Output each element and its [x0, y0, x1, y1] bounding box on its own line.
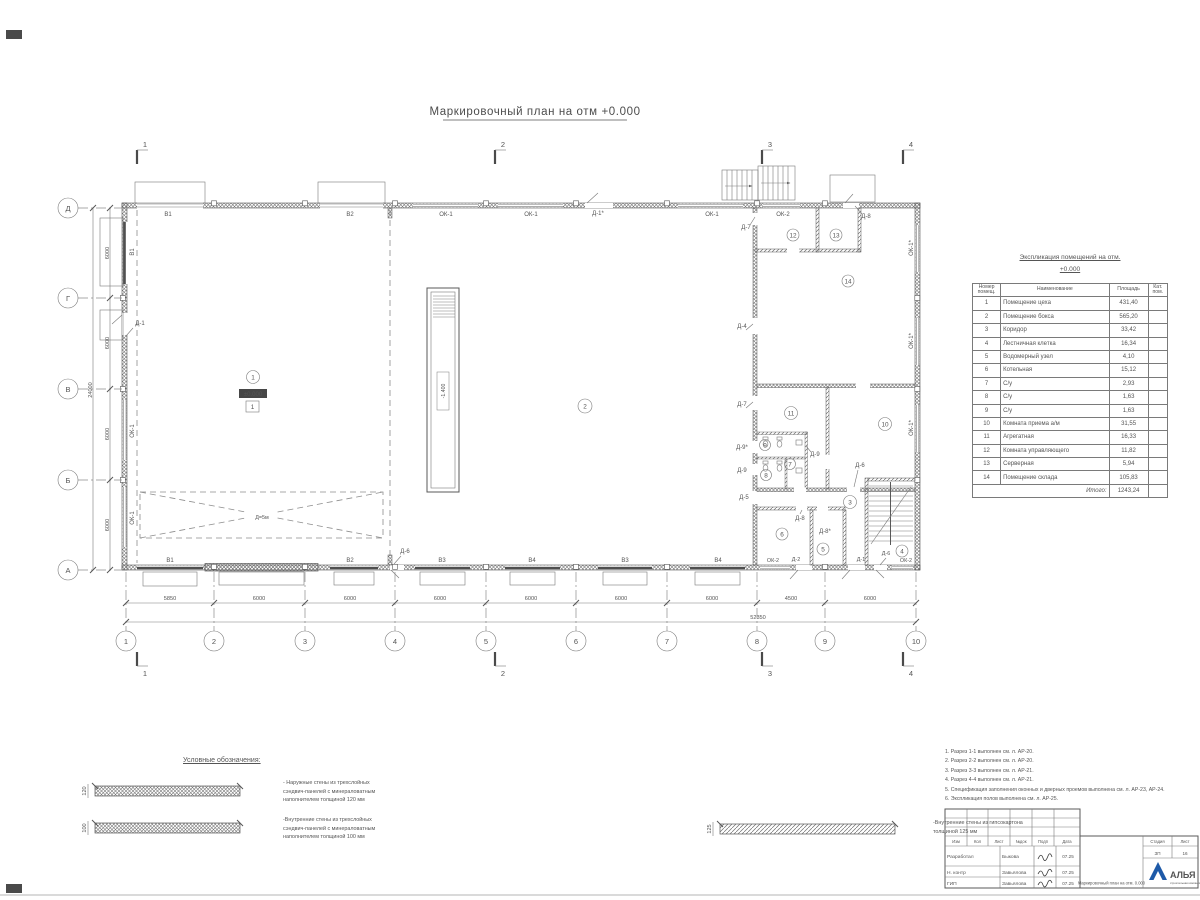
table-row: 7С/у2,93 — [973, 377, 1168, 390]
tb-header: Кол — [974, 839, 982, 844]
col-header-category: Кат. пом. — [1148, 284, 1167, 297]
room-number: 7 — [788, 462, 792, 469]
dim-text: 4500 — [785, 596, 797, 602]
section-number: 3 — [768, 669, 772, 678]
window-label: ОК-1 — [705, 212, 719, 218]
gate-label: В1 — [164, 212, 172, 218]
note-line: 5. Спецификация заполнения оконных и две… — [945, 786, 1165, 795]
room-number: 4 — [900, 549, 904, 556]
tb-date: 07.25 — [1062, 881, 1074, 886]
legend-dim: 120 — [82, 786, 88, 795]
table-row: 12Комната управляющего11,82 — [973, 444, 1168, 457]
table-row: 3Коридор33,42 — [973, 324, 1168, 337]
tb-date: 07.25 — [1062, 870, 1074, 875]
table-row: 6Котельная15,12 — [973, 364, 1168, 377]
pit-elevation: -1.400 — [441, 384, 447, 399]
tb-date: 07.25 — [1062, 854, 1074, 859]
col-header-name: Наименование — [1001, 284, 1109, 297]
dimensions-bottom: 5850 6000 6000 6000 6000 6000 6000 4500 … — [123, 596, 919, 625]
section-number: 2 — [501, 140, 505, 149]
total-value: 1243,24 — [1109, 484, 1148, 497]
window-label: ОК-1 — [130, 511, 136, 525]
table-row: 9С/у1,63 — [973, 404, 1168, 417]
table-row: 10Комната приема а/м31,55 — [973, 417, 1168, 430]
tb-role: Разработал — [947, 854, 974, 860]
legend-title: Условные обозначения: — [183, 757, 261, 764]
signature — [1038, 869, 1052, 876]
floor-type-mark: 1 — [251, 404, 255, 411]
room-number: 12 — [789, 233, 797, 240]
table-row: 4Лестничная клетка16,34 — [973, 337, 1168, 350]
room-number: 6 — [780, 532, 784, 539]
gate-label: В2 — [346, 558, 354, 564]
grid-col: 2 — [212, 637, 216, 646]
tb-role: Н. контр — [947, 870, 966, 876]
grid-col: 9 — [823, 637, 827, 646]
total-label: Итого: — [973, 484, 1110, 497]
section-number: 1 — [143, 140, 147, 149]
tb-stage-label: Стадия — [1150, 839, 1164, 844]
room-number: 13 — [832, 233, 840, 240]
tb-sheet-label: Лист — [1180, 839, 1189, 844]
grid-col: 7 — [665, 637, 669, 646]
grid-col: 4 — [393, 637, 397, 646]
toilet-fixtures — [763, 437, 802, 473]
table-row: 8С/у1,63 — [973, 391, 1168, 404]
door-label: Д-6 — [400, 549, 410, 555]
door-label: Д-4 — [737, 324, 747, 330]
dim-text: 6000 — [344, 596, 356, 602]
table-row: 5Водомерный узел4,10 — [973, 350, 1168, 363]
legend-swatches: 120 100 125 — [82, 783, 898, 836]
plan-title-text: Маркировочный план на отм +0.000 — [429, 106, 640, 118]
grid-col: 10 — [912, 637, 920, 646]
tb-sheet-value: 16 — [1182, 851, 1188, 856]
col-header-number: Номер помещ. — [973, 284, 1001, 297]
window-label: ОК-1 — [130, 424, 136, 438]
gate-label: В1 — [166, 558, 174, 564]
table-header-row: Номер помещ. Наименование Площадь Кат. п… — [973, 284, 1168, 297]
door-label: Д-8 — [795, 516, 805, 522]
company-logo-icon — [1149, 862, 1167, 880]
turning-zone-label: Д=5м — [255, 515, 269, 521]
door-label: Д-9* — [736, 445, 748, 451]
room-number: 8 — [764, 473, 768, 480]
window-label: ОК-1* — [909, 419, 915, 435]
grid-axes: 1 2 3 4 5 6 7 8 9 10 А Б В Г Д — [58, 198, 926, 651]
explication-title-line2: +0.000 — [974, 264, 1166, 276]
tb-header: Дата — [1062, 839, 1072, 844]
dim-text: 6000 — [105, 337, 111, 349]
zero-mark-text: ±0.000 — [244, 392, 263, 398]
table-row: 2Помещение бокса565,20 — [973, 310, 1168, 323]
tb-header: №док — [1015, 839, 1026, 844]
window-label: ОК-2 — [767, 558, 779, 564]
room-number: 10 — [881, 422, 889, 429]
door-label: Д-6 — [882, 551, 890, 557]
table-total-row: Итого: 1243,24 — [973, 484, 1168, 497]
room-number: 14 — [844, 279, 852, 286]
table-row: 13Серверная5,94 — [973, 458, 1168, 471]
door-label: Д-9 — [737, 468, 747, 474]
col-header-area: Площадь — [1109, 284, 1148, 297]
grid-col: 6 — [574, 637, 578, 646]
gate-label: В4 — [528, 558, 536, 564]
door-label: Д-6 — [855, 463, 865, 469]
room-number: 11 — [788, 411, 795, 418]
window-label: ОК-1 — [439, 212, 453, 218]
grid-col: 3 — [303, 637, 307, 646]
dim-text: 6000 — [434, 596, 446, 602]
gate-label: В2 — [346, 212, 354, 218]
explication-title-line1: Экспликация помещений на отм. — [974, 252, 1166, 264]
right-wall-openings — [916, 225, 920, 452]
legend-dim: 125 — [707, 824, 713, 833]
dim-text: 6000 — [253, 596, 265, 602]
grid-row: Г — [66, 294, 70, 303]
explication-title: Экспликация помещений на отм. +0.000 — [974, 252, 1166, 276]
legend-item-text: -Внутренние стены из гипсокартона толщин… — [933, 819, 1113, 836]
grid-row: А — [65, 566, 70, 575]
plan-title: Маркировочный план на отм +0.000 — [429, 106, 640, 120]
door-label: Д-9 — [810, 452, 820, 458]
dim-text: 5850 — [164, 596, 176, 602]
notes-list: 1. Разрез 1-1 выполнен см. л. АР-20.2. Р… — [945, 748, 1165, 804]
table-row: 14Помещение склада105,83 — [973, 471, 1168, 484]
gate-label: В1 — [130, 248, 136, 256]
dim-text: 6000 — [615, 596, 627, 602]
note-line: 2. Разрез 2-2 выполнен см. л. АР-20. — [945, 757, 1165, 766]
room-number: 1 — [251, 375, 255, 382]
gate-label: В3 — [621, 558, 629, 564]
dim-text: 6000 — [105, 519, 111, 531]
turning-zone: Д=5м — [140, 492, 383, 538]
bottom-wall-openings — [137, 564, 913, 587]
door-label: Д-2 — [792, 557, 800, 563]
dim-text: 6000 — [105, 247, 111, 259]
room-number: 5 — [821, 547, 825, 554]
table-row: 11Агрегатная16,33 — [973, 431, 1168, 444]
tb-header: Подп — [1038, 839, 1048, 844]
note-line: 6. Экспликация полов выполнена см. л. АР… — [945, 795, 1165, 804]
grid-row: В — [65, 385, 70, 394]
drawing-sheet: Маркировочный план на отм +0.000 — [0, 0, 1200, 900]
grid-row: Б — [66, 476, 71, 485]
tb-doc-title: Маркировочный план на отм. 0.000 — [1078, 881, 1146, 886]
door-label: Д-1 — [135, 321, 145, 327]
exterior-stairs — [722, 166, 795, 200]
tb-name: Завьялова — [1002, 870, 1027, 876]
legend-item-text: - Наружные стены из трехслойных сэндвич-… — [283, 779, 473, 805]
section-number: 1 — [143, 669, 147, 678]
table-row: 1Помещение цеха431,40 — [973, 297, 1168, 310]
logo-subtext: строительная компания — [1170, 881, 1200, 885]
zero-elevation-mark: ±0.000 1 — [239, 389, 267, 412]
section-number: 4 — [909, 669, 913, 678]
door-label: Д-8* — [819, 529, 831, 535]
room-number: 9 — [763, 443, 767, 450]
legend-dim: 100 — [82, 823, 88, 832]
room-explication-table: Номер помещ. Наименование Площадь Кат. п… — [972, 283, 1168, 498]
dim-total: 52350 — [750, 615, 766, 621]
section-number: 3 — [768, 140, 772, 149]
grid-row: Д — [65, 204, 70, 213]
note-line: 1. Разрез 1-1 выполнен см. л. АР-20. — [945, 748, 1165, 757]
signature — [1038, 880, 1052, 887]
logo-text: АЛЬЯ — [1170, 870, 1196, 880]
gate-label: В3 — [438, 558, 446, 564]
door-label: Д-1* — [592, 211, 604, 217]
signature — [1038, 854, 1052, 861]
window-label: ОК-2 — [900, 558, 912, 564]
tb-role: ГИП — [947, 881, 957, 887]
room-number: 2 — [583, 404, 587, 411]
dim-total: 24000 — [88, 382, 94, 398]
dim-text: 6000 — [105, 428, 111, 440]
gate-label: В4 — [714, 558, 722, 564]
window-label: ОК-1* — [909, 332, 915, 348]
section-number: 4 — [909, 140, 913, 149]
door-label: Д-5 — [739, 495, 749, 501]
dim-text: 6000 — [864, 596, 876, 602]
tb-header: Изм — [952, 839, 960, 844]
grid-col: 8 — [755, 637, 759, 646]
tb-name: Завьялова — [1002, 881, 1027, 887]
door-label: Д-8 — [861, 214, 871, 220]
legend-item-text: -Внутренние стены из трехслойных сэндвич… — [283, 816, 473, 842]
window-label: ОК-2 — [776, 212, 790, 218]
dim-text: 6000 — [706, 596, 718, 602]
grid-col: 5 — [484, 637, 488, 646]
tb-name: Быкова — [1002, 854, 1019, 860]
note-line: 4. Разрез 4-4 выполнен см. л. АР-21. — [945, 776, 1165, 785]
inspection-pit: -1.400 — [427, 288, 459, 492]
note-line: 3. Разрез 3-3 выполнен см. л. АР-21. — [945, 767, 1165, 776]
door-label: Д-7 — [737, 402, 747, 408]
door-label: Д-7 — [741, 225, 751, 231]
window-label: ОК-1 — [524, 212, 538, 218]
tb-header: Лист — [994, 839, 1003, 844]
grid-col: 1 — [124, 637, 128, 646]
room-number: 3 — [848, 500, 852, 507]
door-label: Д-1 — [857, 557, 865, 563]
tb-stage-value: ЗП — [1154, 851, 1160, 856]
window-label: ОК-1* — [909, 239, 915, 255]
dim-text: 6000 — [525, 596, 537, 602]
section-number: 2 — [501, 669, 505, 678]
